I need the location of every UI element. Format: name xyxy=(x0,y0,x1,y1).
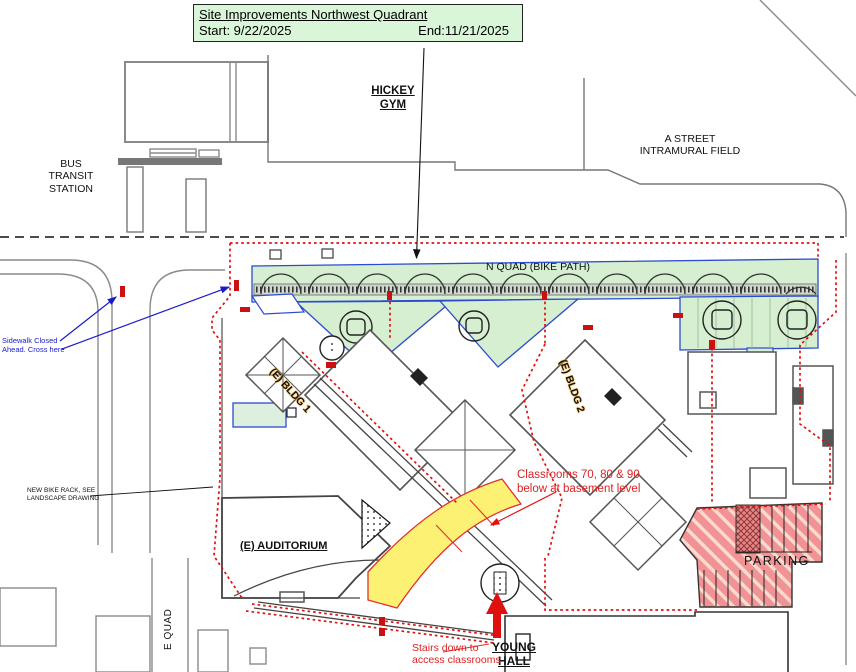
start-date: Start: 9/22/2025 xyxy=(199,23,292,38)
note-bike-rack: NEW BIKE RACK, SEE LANDSCAPE DRAWING xyxy=(27,487,99,504)
note-sidewalk-closed: Sidewalk Closed Ahead. Cross here xyxy=(2,337,65,355)
note-stairs: Stairs down to access classrooms xyxy=(412,642,501,667)
title-text: Site Improvements Northwest Quadrant xyxy=(199,7,427,22)
label-hickey-gym: HICKEY GYM xyxy=(358,85,428,112)
label-a-street: A STREET INTRAMURAL FIELD xyxy=(612,133,768,158)
sidewalk-arrow-1 xyxy=(60,297,116,341)
label-e-auditorium: (E) AUDITORIUM xyxy=(240,540,327,553)
plan-drawing xyxy=(0,0,856,672)
campus-buildings xyxy=(222,330,833,672)
site-plan: Site Improvements Northwest Quadrant Sta… xyxy=(0,0,856,672)
label-n-quad: N QUAD (BIKE PATH) xyxy=(468,261,608,273)
gym-pointer-arrow xyxy=(417,48,425,258)
note-classrooms: Classrooms 70, 80 & 90 below at basement… xyxy=(517,469,640,496)
label-e-quad: E QUAD xyxy=(163,609,175,650)
title-box: Site Improvements Northwest Quadrant Sta… xyxy=(193,4,523,42)
sidewalk-arrow-2 xyxy=(62,287,229,349)
end-date: End:11/21/2025 xyxy=(418,23,509,38)
label-parking: PARKING xyxy=(744,554,810,569)
bike-rack-leader xyxy=(90,487,213,496)
label-bus-transit: BUS TRANSIT STATION xyxy=(38,158,104,195)
